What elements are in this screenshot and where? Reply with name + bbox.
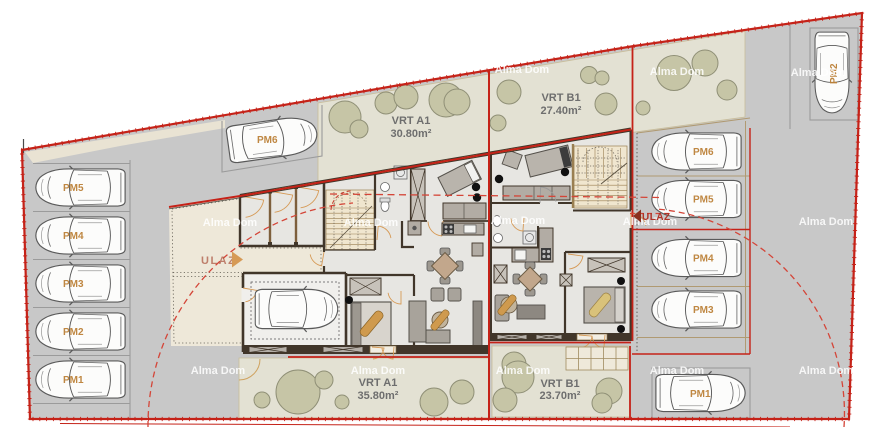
- svg-text:PM5: PM5: [693, 195, 714, 206]
- svg-text:30.80m²: 30.80m²: [391, 128, 432, 140]
- svg-text:PM2: PM2: [63, 327, 84, 338]
- svg-text:PM1: PM1: [63, 375, 84, 386]
- svg-text:PM3: PM3: [693, 305, 714, 316]
- svg-text:PM1: PM1: [690, 389, 711, 400]
- svg-text:Alma Dom: Alma Dom: [351, 365, 406, 377]
- svg-text:ULAZ: ULAZ: [642, 212, 671, 223]
- svg-text:Alma Dom: Alma Dom: [799, 365, 854, 377]
- svg-text:Alma Dom: Alma Dom: [491, 215, 546, 227]
- svg-text:Alma Dom: Alma Dom: [650, 66, 705, 78]
- svg-text:VRT A1: VRT A1: [359, 377, 398, 389]
- svg-text:PM3: PM3: [63, 279, 84, 290]
- svg-text:23.70m²: 23.70m²: [540, 390, 581, 402]
- svg-text:27.40m²: 27.40m²: [541, 105, 582, 117]
- svg-text:Alma Dom: Alma Dom: [496, 365, 551, 377]
- svg-text:Alma Dom: Alma Dom: [344, 217, 399, 229]
- svg-text:PM4: PM4: [693, 254, 714, 265]
- svg-text:Alma Dom: Alma Dom: [791, 67, 846, 79]
- svg-text:Alma Dom: Alma Dom: [191, 365, 246, 377]
- svg-text:PM6: PM6: [693, 147, 714, 158]
- svg-text:Alma Dom: Alma Dom: [650, 365, 705, 377]
- svg-text:VRT B1: VRT B1: [541, 92, 580, 104]
- svg-text:Alma Dom: Alma Dom: [203, 217, 258, 229]
- svg-text:PM4: PM4: [63, 231, 84, 242]
- svg-text:VRT B1: VRT B1: [540, 378, 579, 390]
- svg-text:Alma Dom: Alma Dom: [495, 64, 550, 76]
- svg-text:35.80m²: 35.80m²: [358, 390, 399, 402]
- svg-text:VRT A1: VRT A1: [392, 115, 431, 127]
- svg-text:Alma Dom: Alma Dom: [799, 216, 854, 228]
- svg-text:PM6: PM6: [257, 135, 278, 146]
- svg-text:PM5: PM5: [63, 183, 84, 194]
- svg-text:ULAZ: ULAZ: [201, 255, 236, 267]
